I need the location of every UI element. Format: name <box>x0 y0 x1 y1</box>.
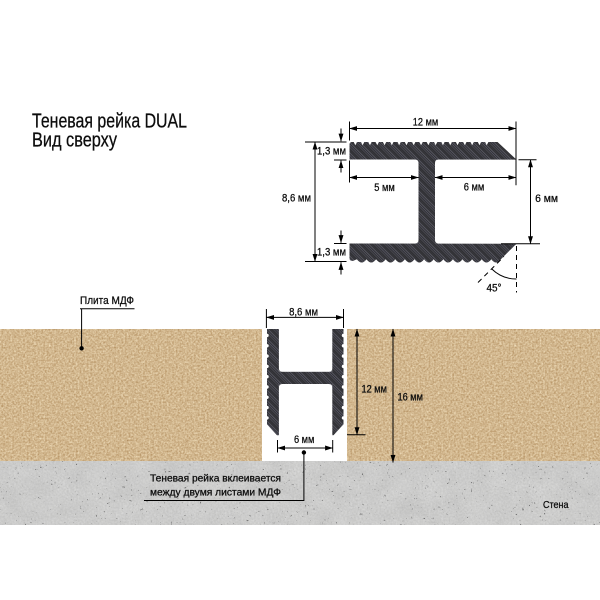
svg-text:6 мм: 6 мм <box>464 181 485 193</box>
svg-text:6 мм: 6 мм <box>535 193 558 205</box>
svg-text:1,3 мм: 1,3 мм <box>317 247 346 259</box>
svg-text:Стена: Стена <box>543 499 569 511</box>
svg-text:12 мм: 12 мм <box>362 384 387 396</box>
svg-text:1,3 мм: 1,3 мм <box>317 146 346 158</box>
svg-text:6 мм: 6 мм <box>294 434 315 446</box>
svg-text:Вид сверху: Вид сверху <box>32 130 117 152</box>
svg-text:45°: 45° <box>487 283 502 295</box>
svg-text:8,6 мм: 8,6 мм <box>282 192 311 204</box>
svg-text:8,6 мм: 8,6 мм <box>289 306 318 318</box>
svg-text:5 мм: 5 мм <box>374 182 395 194</box>
svg-text:Плита МДФ: Плита МДФ <box>80 295 134 307</box>
svg-text:Теневая рейка вклеивается: Теневая рейка вклеивается <box>150 472 281 484</box>
svg-text:между двумя листами МДФ: между двумя листами МДФ <box>150 486 281 498</box>
svg-text:12 мм: 12 мм <box>413 116 438 128</box>
svg-text:16 мм: 16 мм <box>398 392 423 404</box>
